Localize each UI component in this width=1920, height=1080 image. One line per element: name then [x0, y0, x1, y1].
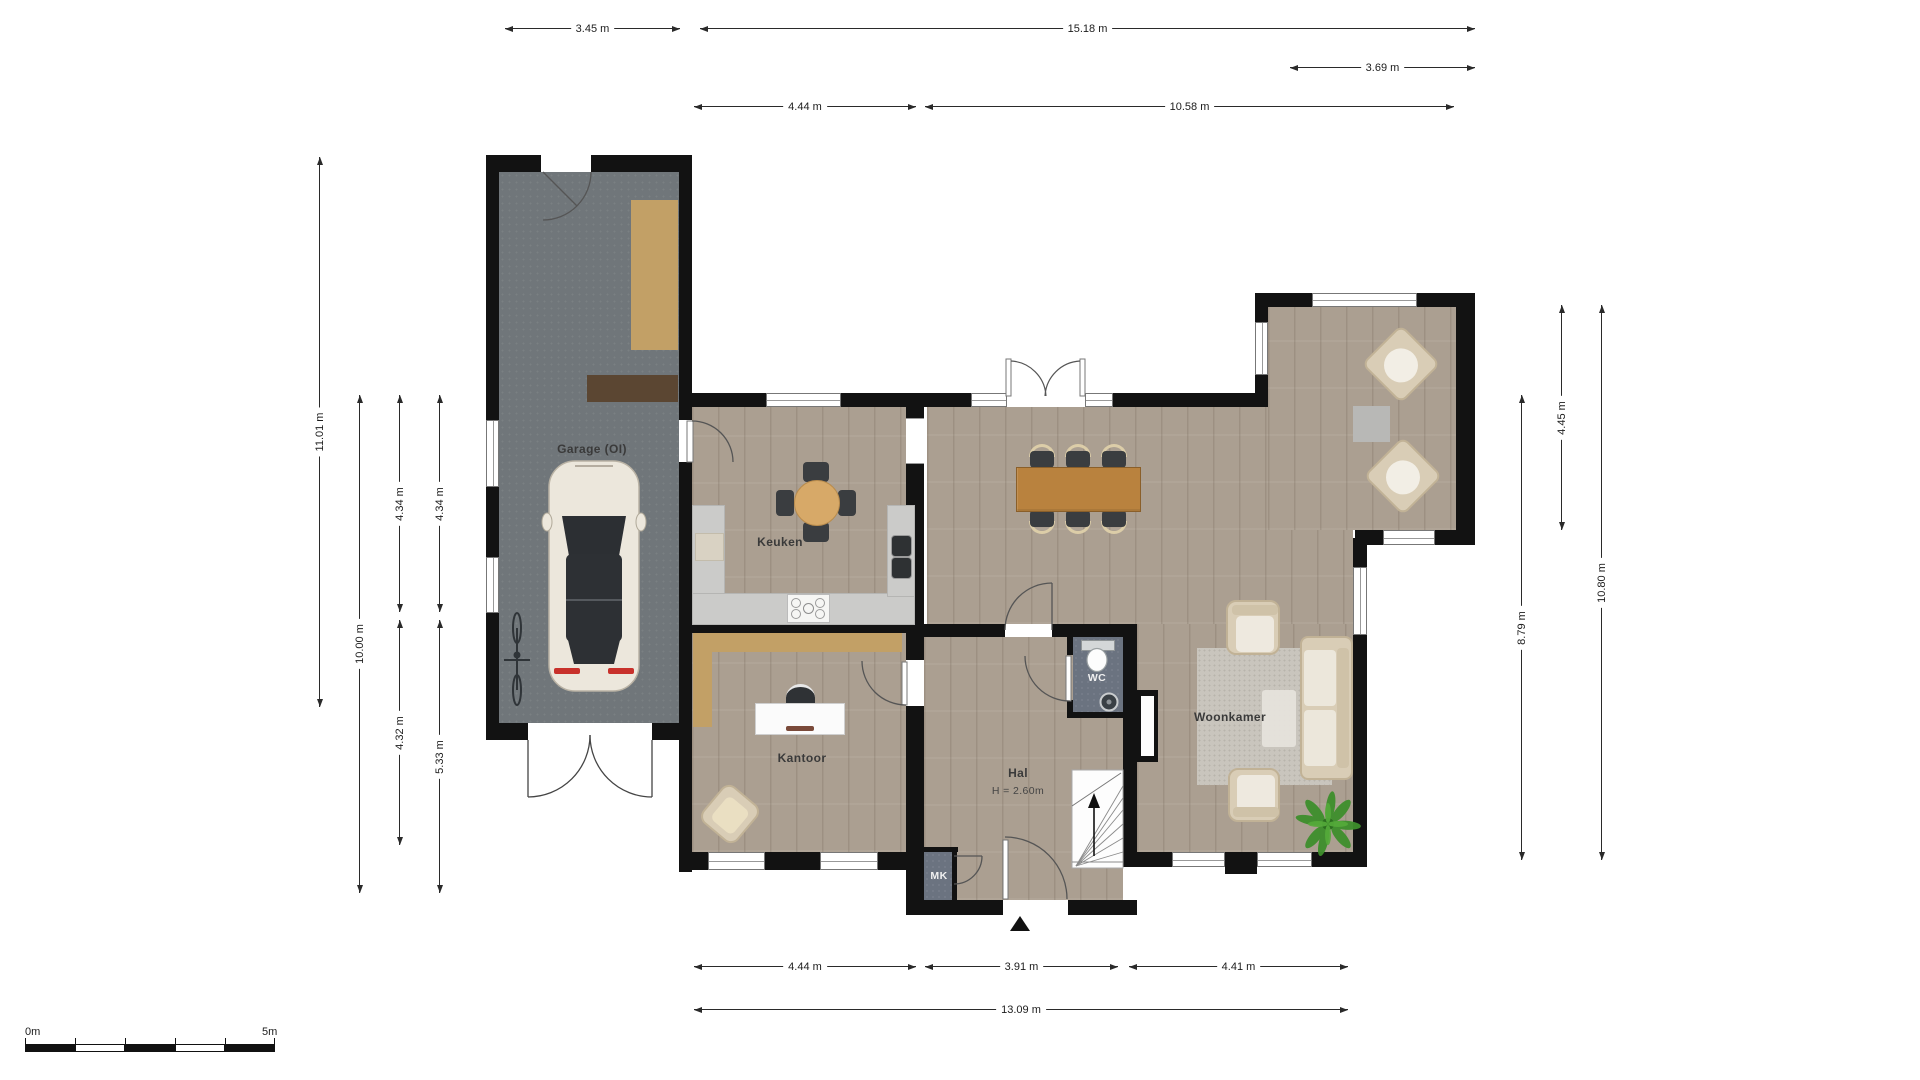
entrance-marker: [1010, 916, 1030, 931]
room-label-kantoor: Kantoor: [778, 751, 827, 765]
scale-bar-tick: [25, 1038, 26, 1045]
room-label-wc: WC: [1088, 672, 1106, 684]
dimension-left-kantoor2: 5.33 m: [439, 620, 440, 893]
wc-sink: [1101, 694, 1118, 711]
dimension-top-house: 15.18 m: [700, 28, 1475, 29]
car: [542, 461, 646, 691]
scale-bar-tick: [225, 1038, 226, 1045]
scale-bar-segment: [225, 1044, 275, 1052]
dimension-left-keuken2: 4.34 m: [439, 395, 440, 612]
room-label-woonkamer: Woonkamer: [1194, 710, 1266, 724]
room-height-label: H = 2.60m: [992, 785, 1044, 797]
dimension-top-living: 10.58 m: [925, 106, 1454, 107]
dimension-right-living: 8.79 m: [1521, 395, 1522, 860]
dimension-right-total: 10.80 m: [1601, 305, 1602, 860]
room-label-mk: MK: [930, 870, 947, 882]
door-arc: [954, 856, 982, 884]
room-label-hal: Hal: [1008, 766, 1028, 780]
stairs: [1072, 770, 1123, 868]
dimension-right-block: 4.45 m: [1561, 305, 1562, 530]
room-label-keuken: Keuken: [757, 535, 803, 549]
plant: [1295, 791, 1361, 857]
dimension-left-kantoor: 4.32 m: [399, 620, 400, 845]
dimension-left-keuken: 4.34 m: [399, 395, 400, 612]
scale-bar-tick: [75, 1038, 76, 1045]
scale-bar-tick: [274, 1038, 275, 1045]
dimension-top-garage: 3.45 m: [505, 28, 680, 29]
double-door: [1006, 359, 1085, 396]
scale-bar-tick: [125, 1038, 126, 1045]
dimension-bottom-total: 13.09 m: [694, 1009, 1348, 1010]
door-arc: [862, 661, 907, 705]
door-arc: [1025, 656, 1071, 701]
room-label-garage: Garage (OI): [557, 442, 627, 456]
scale-bar-tick: [175, 1038, 176, 1045]
door-arc: [687, 421, 733, 462]
dimension-left-house: 10.00 m: [359, 395, 360, 893]
scale-bar-segment: [25, 1044, 75, 1052]
garage-door-arcs: [528, 735, 652, 797]
dimension-bottom-kantoor: 4.44 m: [694, 966, 916, 967]
dimension-bottom-woonkamer: 4.41 m: [1129, 966, 1348, 967]
dimension-bottom-hal: 3.91 m: [925, 966, 1118, 967]
toilet: [1087, 649, 1107, 672]
dimension-top-block: 3.69 m: [1290, 67, 1475, 68]
dimension-top-keuken: 4.44 m: [694, 106, 916, 107]
scale-bar-segment: [75, 1044, 125, 1052]
scale-bar-start-label: 0m: [25, 1026, 40, 1038]
door-arc: [543, 172, 591, 220]
plan-overlay: [0, 0, 1920, 1080]
dimension-left-garage: 11.01 m: [319, 157, 320, 707]
bicycle: [504, 613, 530, 705]
door-arc: [1005, 583, 1052, 630]
floor-plan-canvas: Garage (OI) Keuken Kantoor Hal H = 2.60m…: [0, 0, 1920, 1080]
scale-bar-segment: [125, 1044, 175, 1052]
front-door: [1003, 837, 1067, 931]
scale-bar-segment: [175, 1044, 225, 1052]
scale-bar-end-label: 5m: [262, 1026, 277, 1038]
